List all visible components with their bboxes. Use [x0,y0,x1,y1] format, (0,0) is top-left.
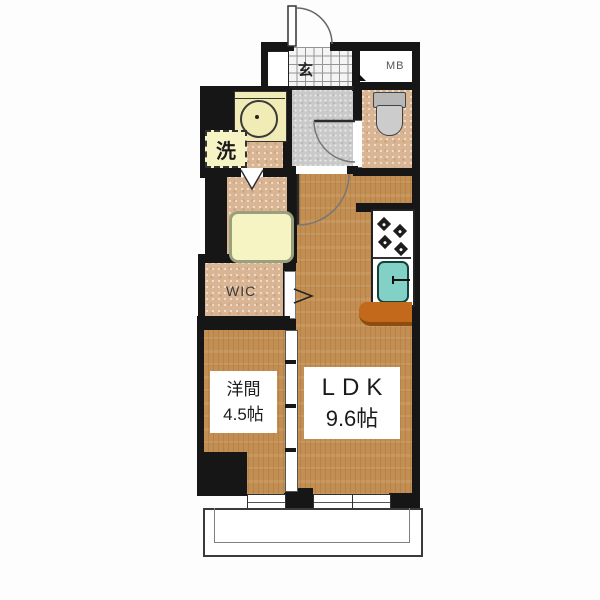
ldk-name: LDK [322,372,390,404]
ldk-area: 9.6帖 [326,404,379,434]
wic-door-arrow [294,289,312,303]
western-room-name: 洋間 [227,377,261,403]
ldk-door-swing-arc [298,174,349,225]
ldk-label-box: LDK 9.6帖 [304,367,400,439]
entrance-door-swing-arc [296,8,332,44]
western-room-area: 4.5帖 [223,402,264,428]
entrance-door-leaf [288,6,296,46]
floorplan-canvas: 洗 玄 MB WIC 洋間 [0,0,600,600]
entrance-label: 玄 [298,59,313,80]
meter-box-label: MB [386,60,405,72]
toilet-door-swing-arc [314,121,355,162]
wic-label: WIC [226,283,256,299]
western-room-label-box: 洋間 4.5帖 [210,371,277,433]
bath-door-marker [241,170,263,189]
door-symbols-layer [0,0,600,600]
